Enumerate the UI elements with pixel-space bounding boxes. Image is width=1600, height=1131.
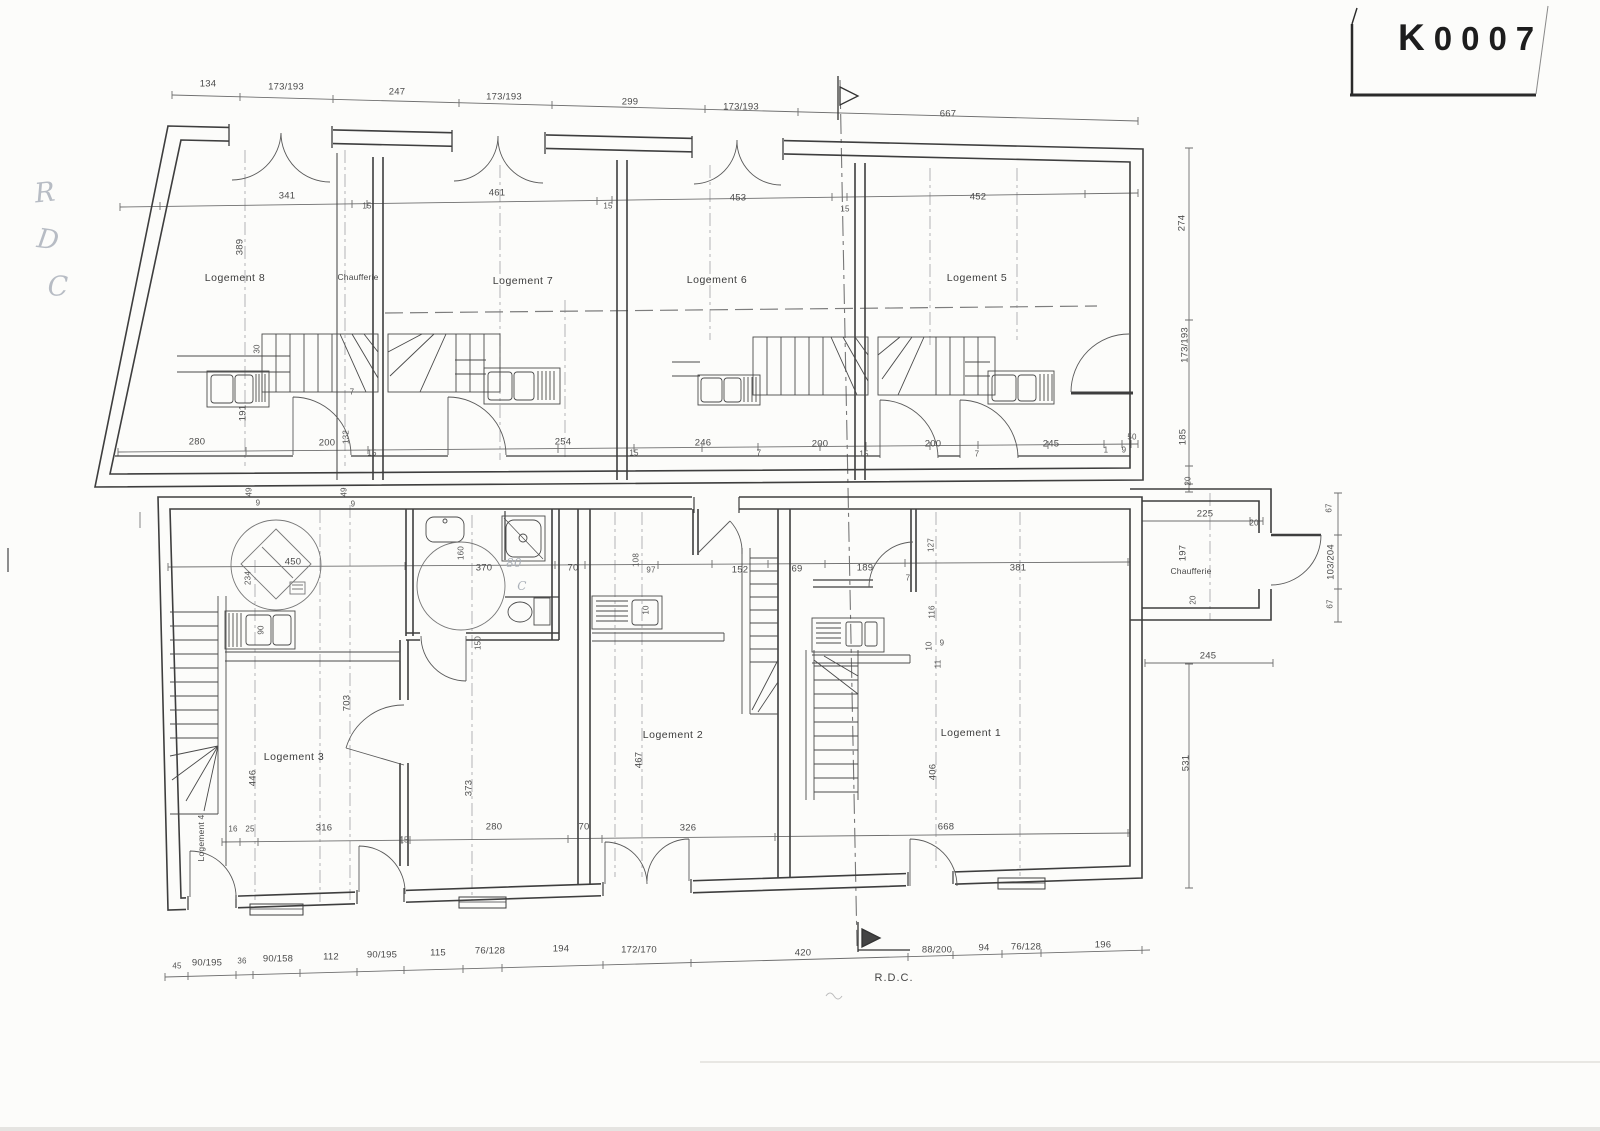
upper-building-walls <box>95 123 1143 487</box>
section-marker-bottom <box>858 922 910 952</box>
floor-plan-drawing <box>0 0 1600 1131</box>
upper-interior-doors <box>293 334 1129 458</box>
floor-label: R.D.C. <box>875 972 914 984</box>
lower-kitchen-sinks <box>225 596 910 663</box>
bathroom-fixtures <box>426 516 550 625</box>
annex-chaufferie <box>1130 489 1321 620</box>
scan-artifacts <box>0 512 1600 1131</box>
stamp-code-rest: 0007 <box>1434 20 1543 57</box>
dimension-lines <box>118 91 1342 981</box>
corridor-dashed-line <box>385 306 1097 313</box>
lower-building-walls <box>158 494 1142 915</box>
stamp-code-first: K <box>1398 17 1434 58</box>
upper-stairs <box>262 334 995 395</box>
lower-doors <box>190 521 957 899</box>
table-icon <box>241 529 311 599</box>
stamp-code: K0007 <box>1398 17 1558 77</box>
washbasin-icon <box>426 517 464 542</box>
scanned-floor-plan-sheet: Logement 8ChaufferieLogement 7Logement 6… <box>0 0 1600 1131</box>
wc-icon <box>534 598 550 625</box>
witness-lines <box>245 150 1210 902</box>
